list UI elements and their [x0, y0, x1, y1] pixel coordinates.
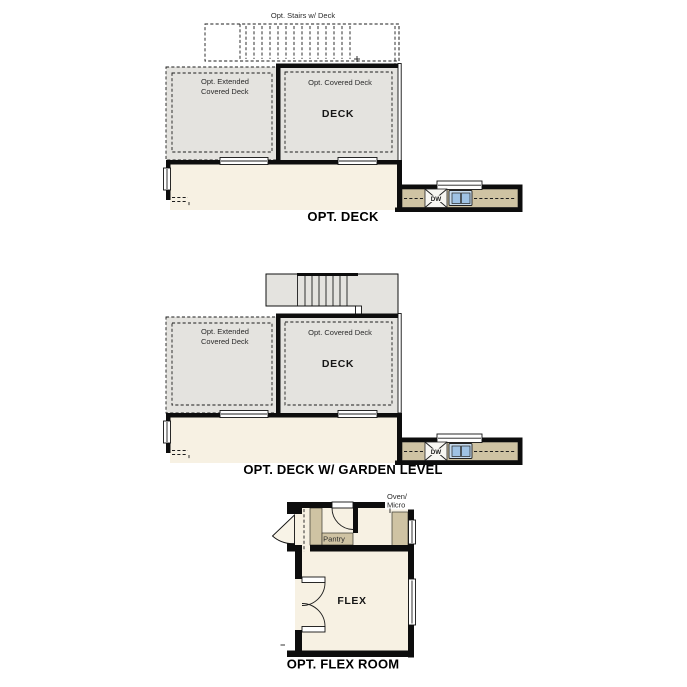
kitchen-sink [449, 191, 472, 206]
entry-door [273, 515, 295, 544]
window [220, 158, 268, 165]
plan-title-opt-flex-room: OPT. FLEX ROOM [287, 657, 400, 672]
pantry-label: Pantry [323, 535, 345, 544]
plan-opt-deck-garden-level: Opt. Extended Covered Deck Opt. Covered … [164, 273, 523, 477]
window [409, 520, 416, 544]
window [409, 579, 416, 625]
deck-room-label: DECK [322, 108, 354, 120]
house-body [164, 158, 401, 211]
opt-stairs-label: Opt. Stairs w/ Deck [271, 11, 335, 20]
extended-deck-label-2: Covered Deck [201, 337, 249, 346]
dishwasher-label: DW [431, 196, 442, 203]
dishwasher: DW [425, 189, 447, 208]
kitchen-strip: DW [395, 413, 523, 465]
extended-deck-label: Opt. Extended [201, 327, 249, 336]
window [437, 434, 482, 443]
deck-room-label: DECK [322, 358, 354, 370]
micro-label: Micro [387, 501, 405, 510]
kitchen-strip: DW [395, 160, 523, 212]
garden-level-stairs [266, 273, 398, 317]
floorplan-sheet: Opt. Stairs w/ Deck Opt. Extended [0, 0, 687, 687]
optional-stairs-dashed [205, 24, 399, 64]
window [164, 168, 171, 190]
dishwasher-label: DW [431, 449, 442, 456]
floorplans-svg: Opt. Stairs w/ Deck Opt. Extended [0, 0, 687, 687]
plan-opt-deck: Opt. Stairs w/ Deck Opt. Extended [164, 11, 523, 224]
plan-opt-flex-room: Oven/ Micro Pantry FLEX OPT. FLEX ROOM [273, 492, 416, 672]
oven-micro-cabinet [392, 512, 408, 546]
kitchen-sink [449, 444, 472, 459]
window [164, 421, 171, 443]
flex-room-label: FLEX [337, 595, 366, 607]
covered-deck-label: Opt. Covered Deck [308, 328, 372, 337]
window [338, 158, 377, 165]
window [338, 411, 377, 418]
plan-title-opt-deck: OPT. DECK [307, 209, 379, 224]
house-body [164, 411, 401, 464]
dishwasher: DW [425, 442, 447, 461]
extended-deck-label-2: Covered Deck [201, 87, 249, 96]
plan-title-opt-deck-garden: OPT. DECK W/ GARDEN LEVEL [243, 462, 442, 477]
window [220, 411, 268, 418]
covered-deck-label: Opt. Covered Deck [308, 78, 372, 87]
extended-deck-label: Opt. Extended [201, 77, 249, 86]
window [437, 181, 482, 190]
